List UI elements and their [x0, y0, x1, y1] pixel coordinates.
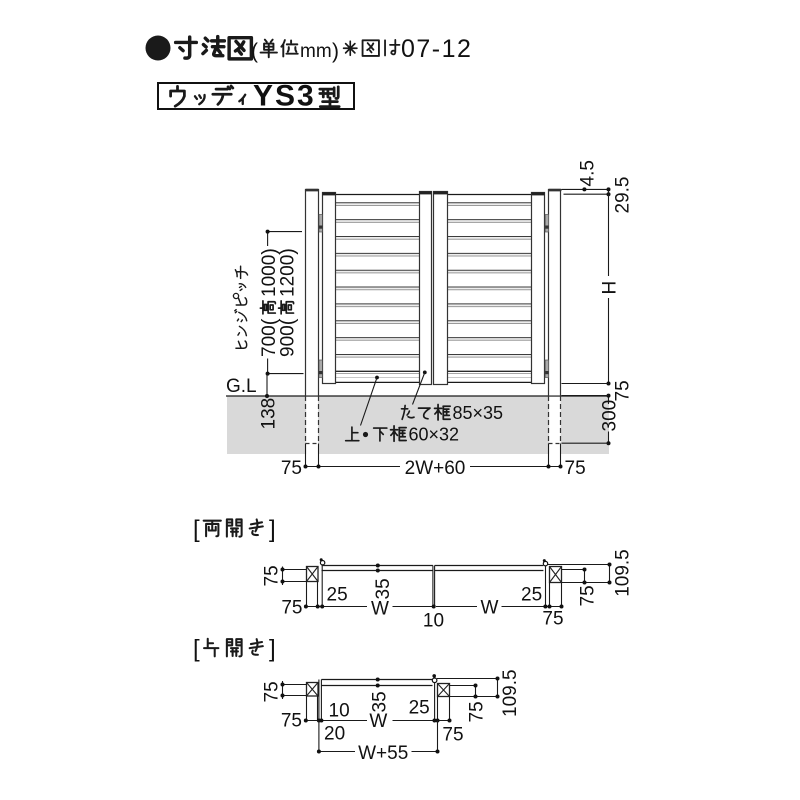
svg-text:2W+60: 2W+60: [405, 458, 466, 479]
svg-text:75: 75: [442, 725, 463, 746]
svg-text:109.5: 109.5: [613, 549, 634, 597]
svg-text:60×32: 60×32: [409, 425, 460, 445]
svg-text:[: [: [193, 516, 200, 543]
svg-text:20: 20: [324, 724, 345, 745]
svg-text:07-12: 07-12: [401, 35, 472, 63]
svg-text:85×35: 85×35: [453, 403, 504, 423]
svg-text:10: 10: [423, 611, 444, 632]
svg-text:mm: mm: [300, 41, 332, 62]
svg-text:75: 75: [542, 609, 563, 630]
svg-text:(: (: [277, 318, 299, 325]
svg-text:1200: 1200: [277, 255, 298, 297]
svg-text:W: W: [369, 711, 387, 732]
svg-text:109.5: 109.5: [500, 669, 521, 717]
svg-text:25: 25: [409, 698, 430, 719]
svg-text:25: 25: [521, 585, 542, 606]
svg-text:]: ]: [269, 516, 276, 543]
svg-text:75: 75: [281, 598, 302, 619]
svg-text:35: 35: [370, 691, 391, 712]
svg-text:4.5: 4.5: [577, 160, 598, 186]
svg-text:75: 75: [565, 458, 586, 479]
svg-text:[: [: [193, 636, 200, 663]
svg-text:W+55: W+55: [358, 743, 408, 764]
svg-text:10: 10: [329, 701, 350, 722]
svg-text:35: 35: [373, 578, 394, 599]
svg-text:29.5: 29.5: [612, 177, 633, 214]
svg-text:W: W: [481, 598, 499, 619]
svg-text:25: 25: [327, 585, 348, 606]
svg-text:138: 138: [258, 398, 279, 430]
svg-text:75: 75: [281, 711, 302, 732]
svg-text:): ): [332, 40, 339, 63]
svg-text:75: 75: [261, 565, 282, 586]
svg-text:]: ]: [269, 636, 276, 663]
svg-text:75: 75: [612, 380, 633, 401]
svg-text:H: H: [599, 281, 620, 295]
svg-text:(: (: [251, 40, 258, 63]
svg-text:75: 75: [281, 458, 302, 479]
svg-text:300: 300: [599, 400, 620, 432]
svg-text:900: 900: [277, 325, 298, 357]
svg-text:75: 75: [261, 681, 282, 702]
svg-text:): ): [277, 248, 299, 255]
svg-text:YS3: YS3: [253, 80, 316, 113]
svg-text:W: W: [371, 599, 389, 620]
svg-text:75: 75: [466, 701, 487, 722]
svg-text:75: 75: [577, 585, 598, 606]
svg-text:G.L: G.L: [226, 376, 257, 397]
